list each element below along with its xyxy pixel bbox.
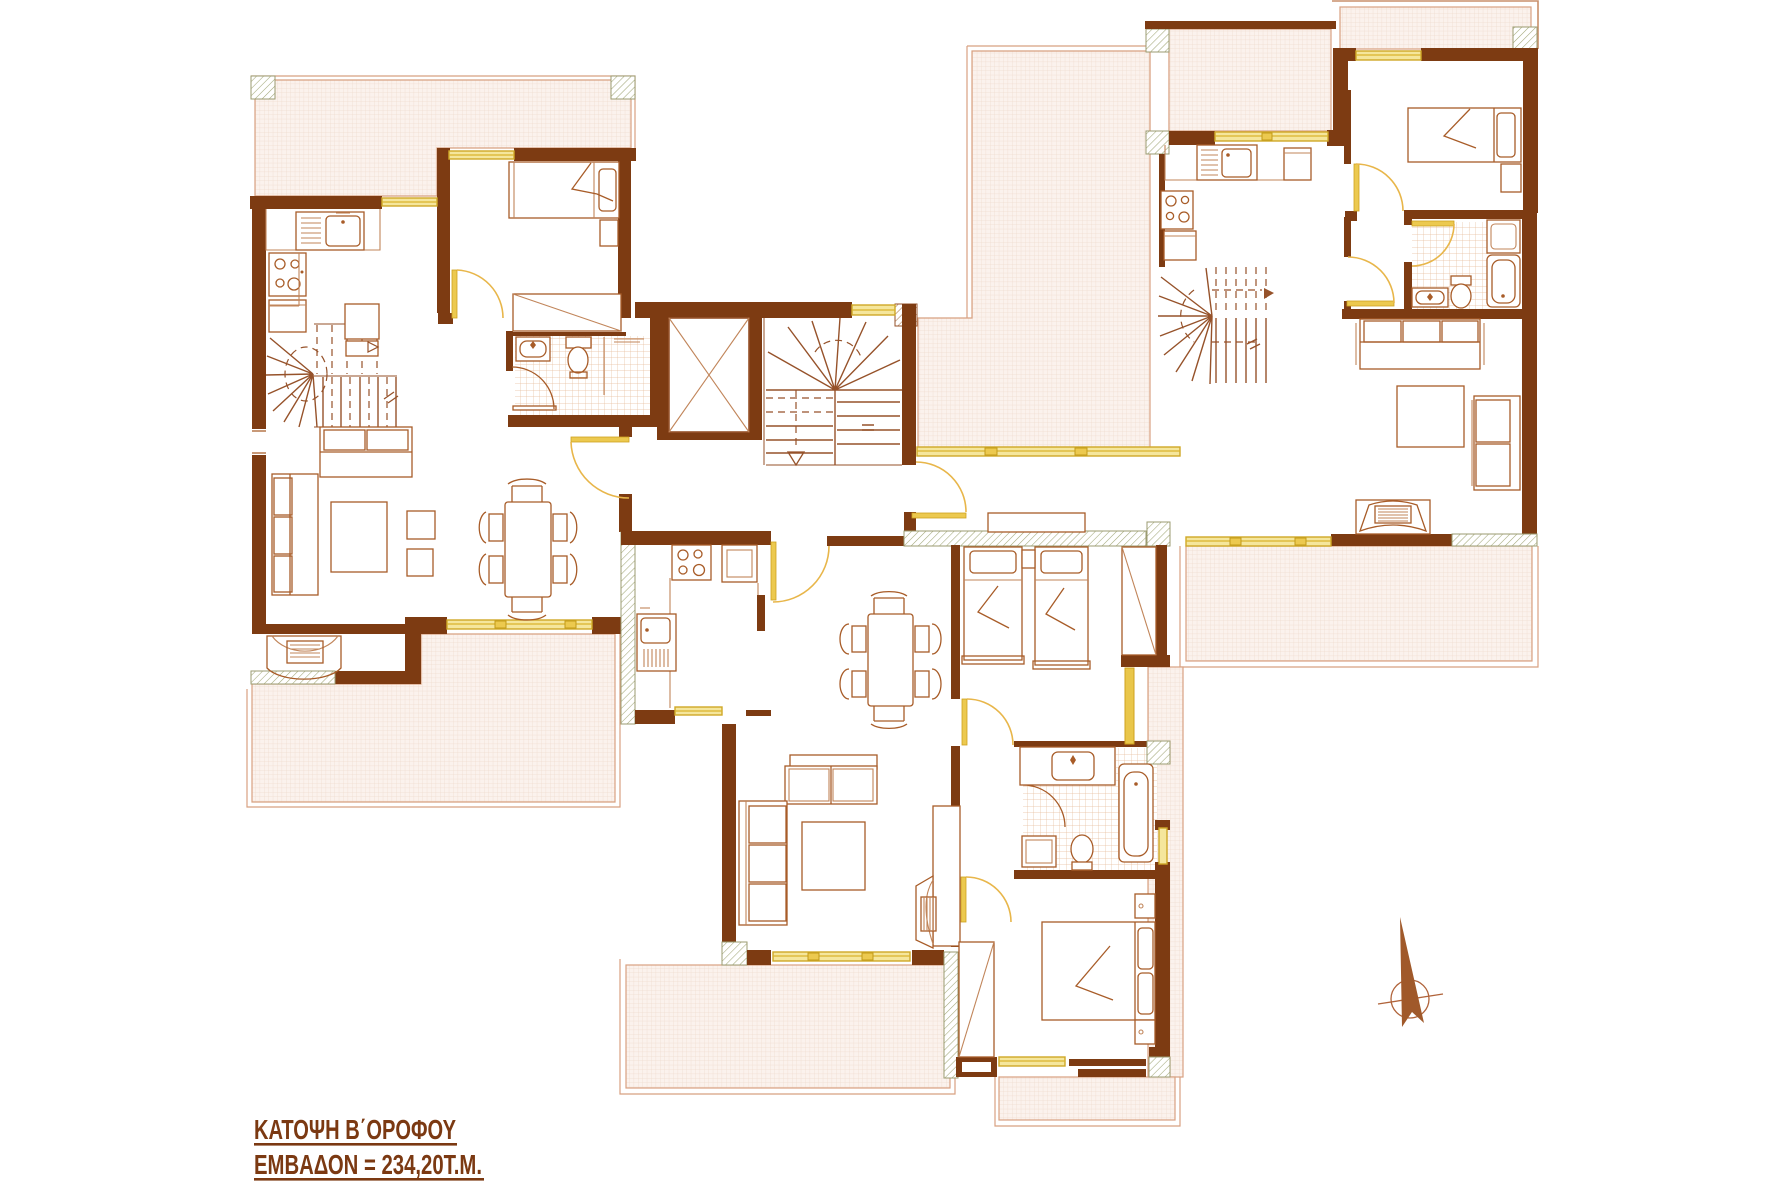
svg-text:ΕΜΒΑΔΟΝ = 234,20Τ.Μ.: ΕΜΒΑΔΟΝ = 234,20Τ.Μ. [254,1149,482,1180]
svg-text:ΚΑΤΟΨΗ Β΄ΟΡΟΦΟΥ: ΚΑΤΟΨΗ Β΄ΟΡΟΦΟΥ [254,1114,456,1145]
